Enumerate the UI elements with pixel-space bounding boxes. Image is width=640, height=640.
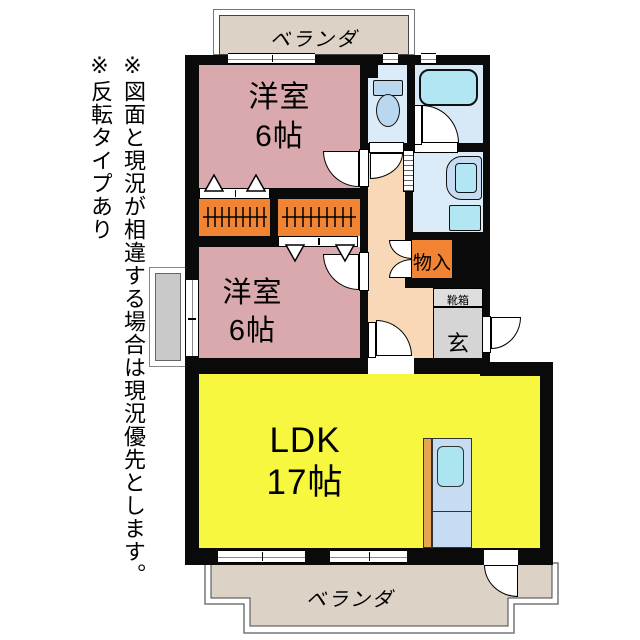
- ldk-name: LDK: [269, 421, 340, 460]
- floor-plan: ベランダ ベランダ 洋室 6帖 洋室 6帖 LDK 17帖 物入 靴箱 玄 ※図…: [0, 0, 640, 640]
- storage-label: 物入: [410, 248, 454, 275]
- window-bath: [421, 53, 436, 64]
- veranda-door-gap: [484, 550, 518, 565]
- washbasin-bowl: [455, 163, 477, 193]
- note-reverse-type: ※反転タイプあり: [84, 54, 117, 606]
- veranda-top-label: ベランダ: [219, 23, 409, 52]
- bedroom-bottom-door-leaf: [359, 252, 369, 291]
- shoe-box-label: 靴箱: [433, 292, 483, 308]
- bedroom-top-size: 6帖: [255, 120, 304, 153]
- window-toilet: [383, 53, 398, 64]
- window-ldk-right: [330, 550, 407, 563]
- closet-left: [199, 199, 270, 236]
- wall-toilet-notch: [368, 65, 378, 78]
- bedroom-bottom-name: 洋室: [222, 277, 282, 309]
- wall-below-storage: [405, 278, 490, 288]
- wall-right-ldk: [540, 362, 553, 565]
- toilet-door-leaf: [369, 142, 404, 153]
- wall-rooms-corridor: [360, 55, 368, 358]
- closet-right-door-strip: [278, 236, 358, 247]
- kitchen-sink: [437, 446, 464, 487]
- bathtub: [419, 69, 478, 106]
- note-disclaimer: ※図面と現況が相違する場合は現況優先とします。: [117, 54, 150, 606]
- washing-machine: [449, 205, 481, 231]
- ldk-door-gap: [368, 356, 414, 374]
- wall-closet-divider: [270, 188, 278, 247]
- bedroom-bottom-label: 洋室 6帖: [190, 274, 315, 350]
- window-ldk-left: [218, 550, 305, 563]
- ldk-door-leaf: [368, 322, 376, 358]
- bath-door-leaf: [414, 105, 422, 145]
- bedroom-top-name: 洋室: [249, 81, 311, 114]
- wall-closet-bottom-left: [185, 236, 277, 247]
- side-balcony: [155, 273, 181, 361]
- closet-left-door-strip: [199, 188, 270, 199]
- front-door-leaf: [482, 316, 491, 353]
- bedroom-bottom-size: 6帖: [229, 315, 276, 347]
- wall-closet-top-right: [270, 188, 362, 199]
- toilet-bowl: [376, 94, 400, 127]
- ldk-label: LDK 17帖: [210, 420, 400, 504]
- bedroom-top-door-leaf: [359, 149, 369, 187]
- kitchen-counter-edge: [423, 438, 432, 548]
- window-bedroom-top: [228, 53, 315, 64]
- entrance-label: 玄: [433, 326, 483, 358]
- ldk-size: 17帖: [267, 463, 344, 502]
- notes-column: ※図面と現況が相違する場合は現況優先とします。 ※反転タイプあり: [84, 54, 150, 606]
- wall-mid-horizontal: [185, 358, 490, 374]
- veranda-bottom-label: ベランダ: [290, 583, 410, 612]
- kitchen-counter-divider: [432, 511, 472, 512]
- wall-right-of-storage: [452, 240, 490, 278]
- closet-right: [278, 199, 360, 236]
- wall-right-upper: [483, 55, 490, 358]
- washroom-bifold-door: [403, 150, 414, 192]
- wall-above-storage: [405, 232, 490, 240]
- bedroom-top-label: 洋室 6帖: [199, 78, 360, 156]
